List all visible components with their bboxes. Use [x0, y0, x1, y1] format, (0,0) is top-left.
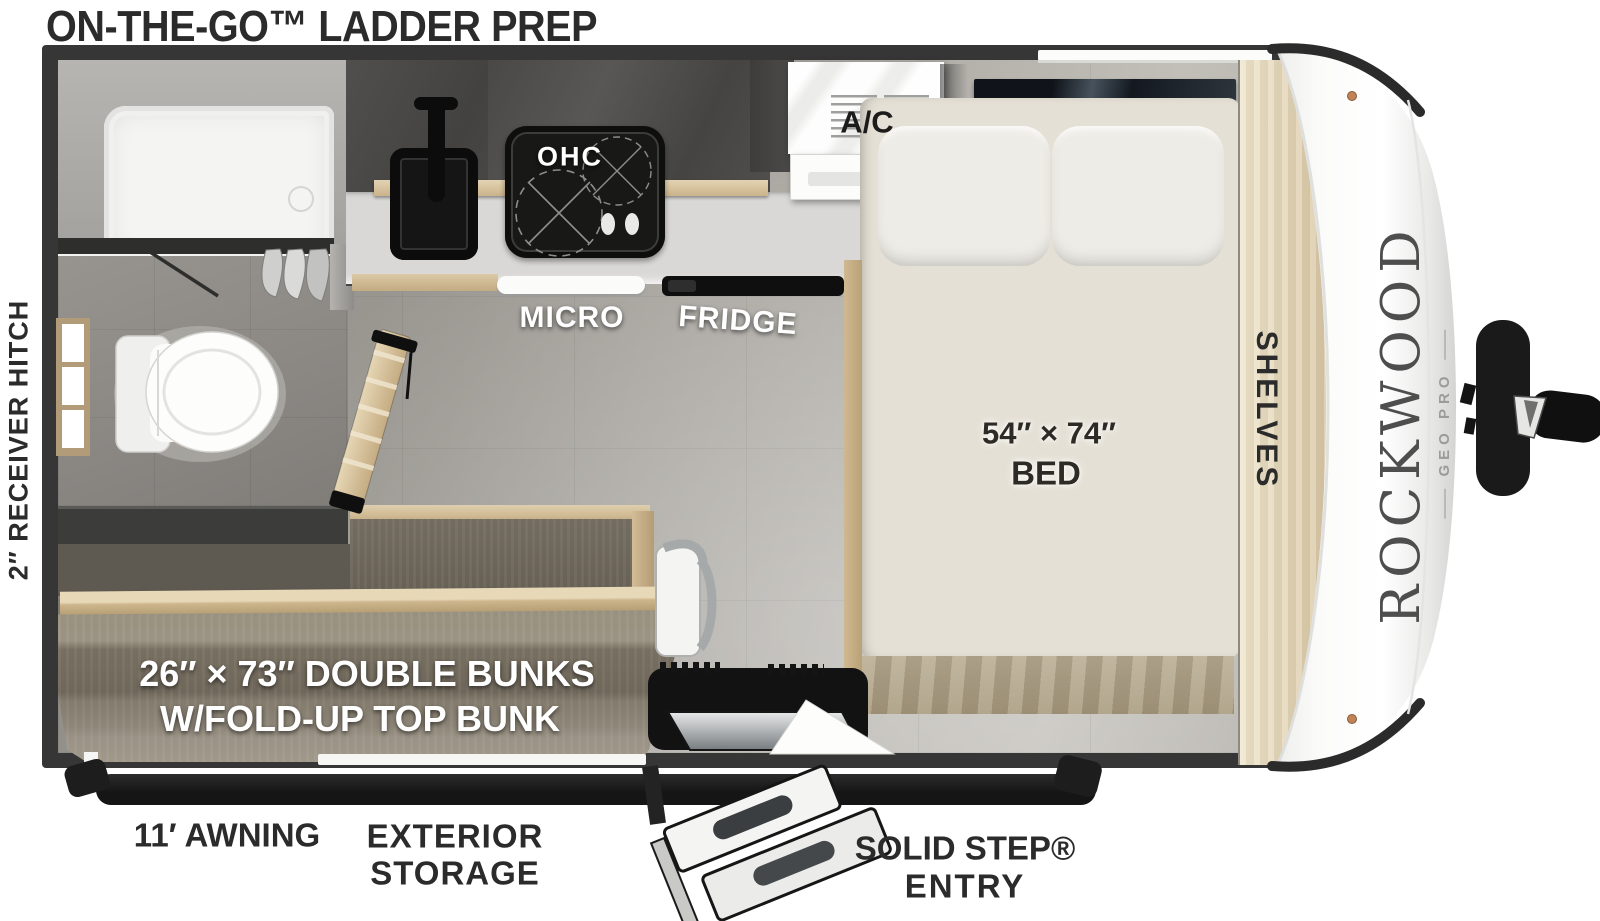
receiver-hitch-label: 2″ RECEIVER HITCH	[6, 300, 33, 580]
bed-size-label: 54″ × 74″	[982, 418, 1116, 449]
bathroom-window	[56, 318, 90, 456]
solid-step-label-line1: SOLID STEP®	[855, 832, 1076, 865]
entry-threshold-right	[768, 664, 824, 675]
sink-faucet-handle	[414, 97, 458, 110]
awning-label: 11′ AWNING	[134, 819, 320, 852]
bunk-head-cushion	[58, 544, 350, 596]
solid-step-label-line2: ENTRY	[905, 870, 1026, 903]
bunks-label-line2: W/FOLD-UP TOP BUNK	[160, 701, 560, 737]
bunks-label-line1: 26″ × 73″ DOUBLE BUNKS	[139, 656, 595, 692]
kitchen-toe-kick	[352, 274, 498, 291]
shower-door-track	[58, 238, 334, 258]
entry-step-well	[648, 668, 868, 750]
awning-rail	[96, 774, 1096, 805]
exterior-storage-label-line1: EXTERIOR	[367, 820, 544, 853]
entry-threshold-left	[660, 662, 720, 673]
bed-pillow-right	[1052, 126, 1224, 266]
step-well-rivet	[690, 712, 695, 717]
microwave	[497, 276, 645, 294]
microwave-label: MICRO	[520, 303, 625, 333]
bathroom-wall	[58, 506, 348, 544]
exterior-storage-door	[318, 754, 646, 765]
step-well-rivet	[798, 712, 803, 717]
bed-pillow-left	[878, 126, 1050, 266]
front-wall-window	[1038, 50, 1272, 63]
bed-wood-base	[862, 656, 1234, 714]
bathroom-floor	[58, 256, 348, 506]
coupler-latch-lever	[1525, 388, 1600, 445]
refrigerator-hinge	[668, 280, 696, 292]
cap-rivet-bottom	[1348, 715, 1357, 724]
bed-side-rail	[844, 260, 862, 700]
brand-name: ROCKWOOD	[1371, 223, 1432, 624]
shelves-label: SHELVES	[1251, 331, 1281, 490]
trailer-floorplan: ON-THE-GO™ LADDER PREP 2″ RECEIVER HITCH…	[0, 0, 1600, 921]
brand-logo: ROCKWOOD GEO PRO	[1371, 223, 1453, 624]
brand-subtitle: GEO PRO	[1436, 223, 1453, 624]
cap-rivet-top	[1348, 92, 1357, 101]
floorplan-title: ON-THE-GO™ LADDER PREP	[46, 2, 597, 52]
hitch-coupler	[1460, 320, 1600, 496]
shower-drain	[288, 186, 314, 212]
sink-faucet	[428, 102, 445, 202]
exterior-storage-label-line2: STORAGE	[370, 857, 540, 890]
bed-label: BED	[1011, 457, 1081, 490]
ac-label: A/C	[840, 107, 893, 138]
overhead-cabinet-label: OHC	[537, 144, 603, 171]
